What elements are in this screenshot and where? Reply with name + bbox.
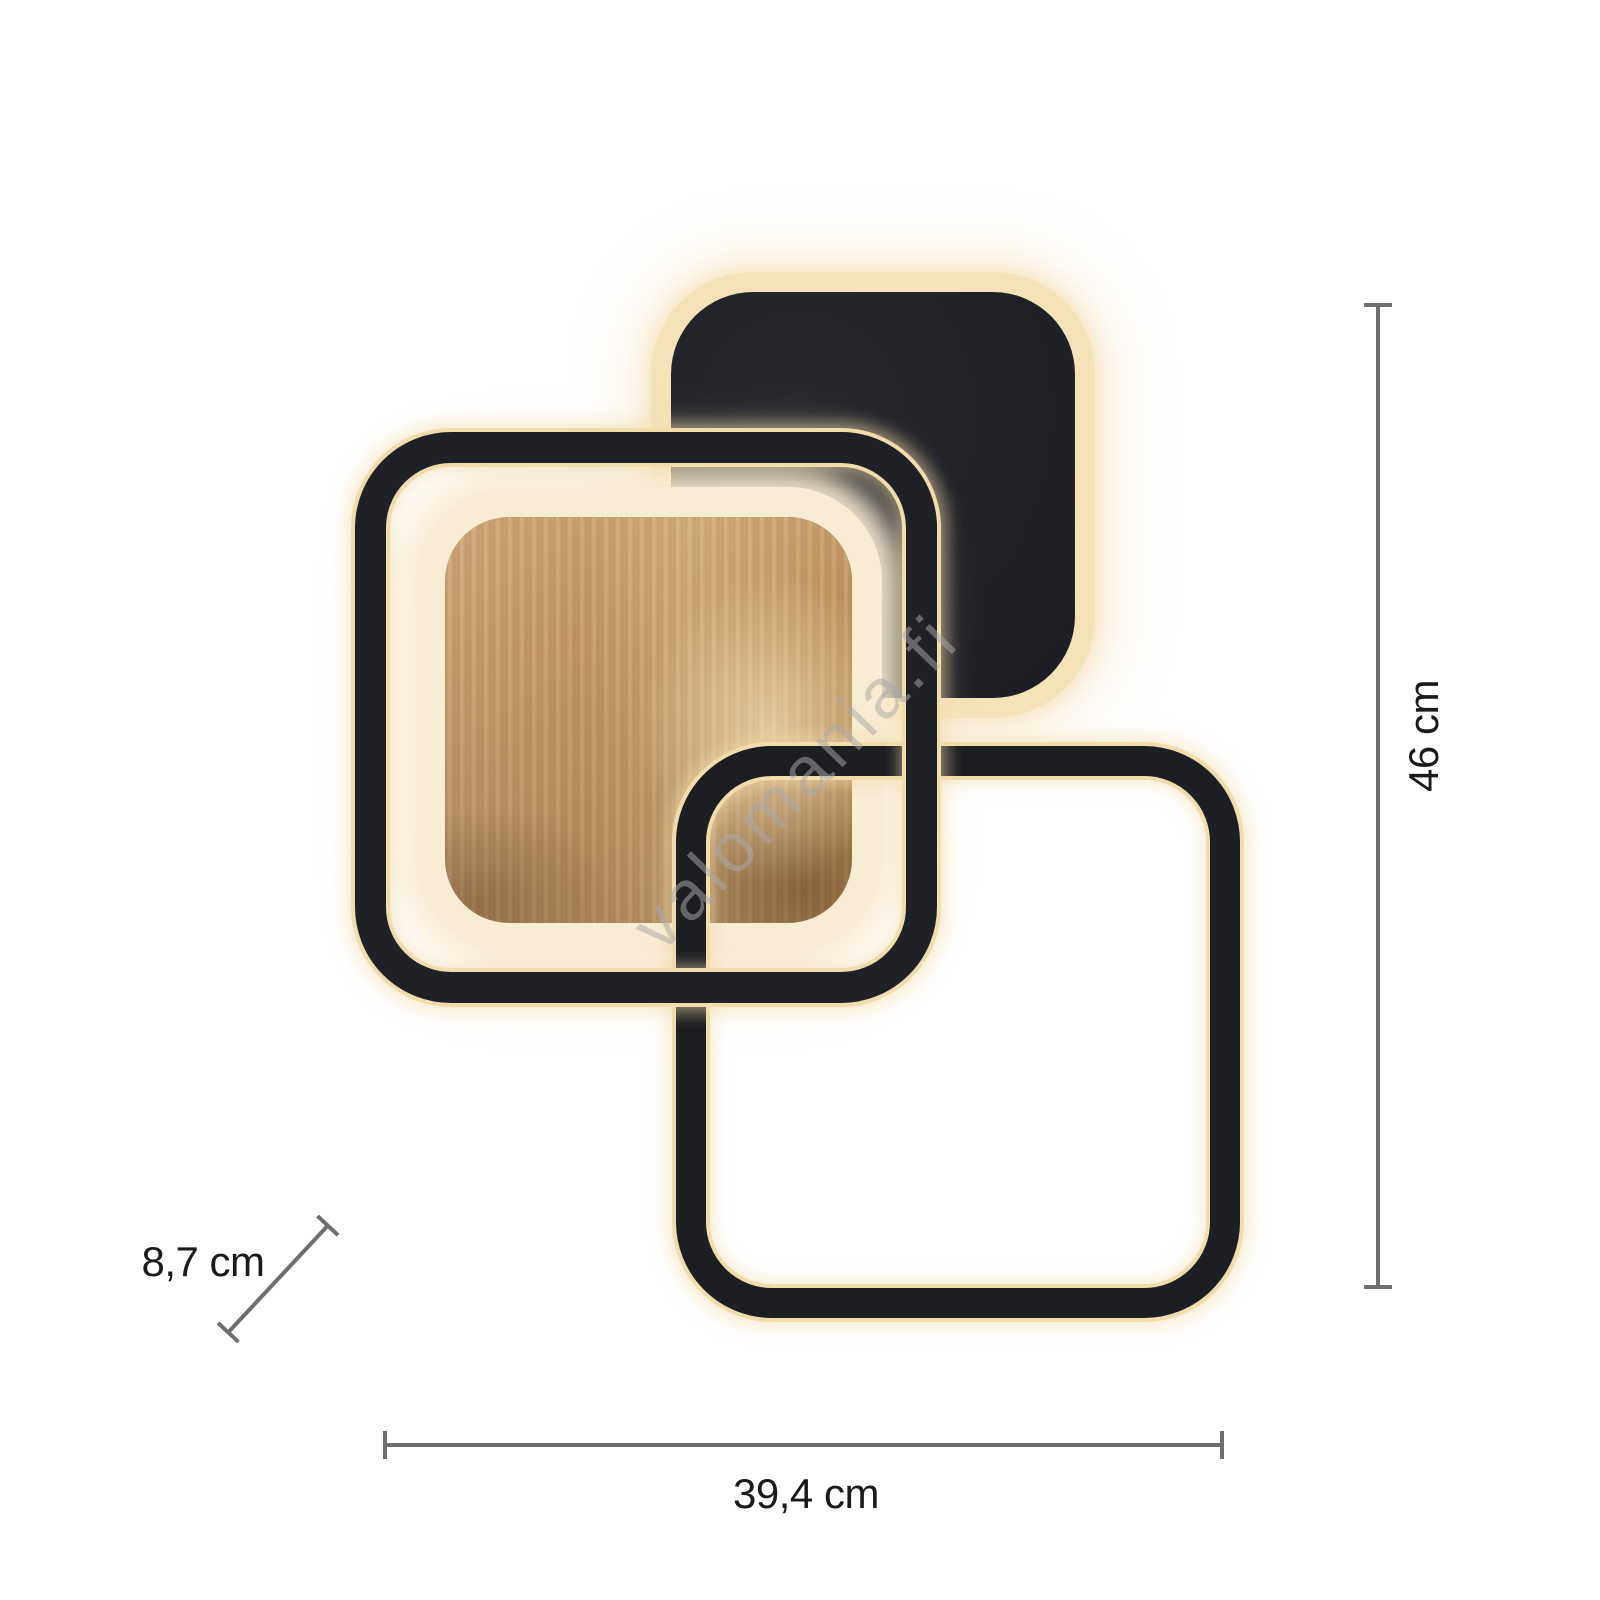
product-dimension-image: valomania.fi 46 cm 39,4 cm 8,7 cm bbox=[0, 0, 1600, 1600]
height-dimension-top-tick bbox=[1364, 303, 1392, 307]
height-dimension-line bbox=[1376, 305, 1380, 1287]
width-dimension-right-tick bbox=[1220, 1431, 1224, 1459]
height-dimension-bottom-tick bbox=[1364, 1285, 1392, 1289]
depth-dimension-far-tick bbox=[316, 1215, 339, 1237]
width-dimension-left-tick bbox=[383, 1431, 387, 1459]
depth-dimension-label: 8,7 cm bbox=[141, 1238, 264, 1286]
width-dimension-label: 39,4 cm bbox=[733, 1470, 879, 1518]
height-dimension-label: 46 cm bbox=[1400, 680, 1448, 792]
depth-dimension-near-tick bbox=[217, 1321, 240, 1343]
width-dimension-line bbox=[385, 1443, 1222, 1447]
